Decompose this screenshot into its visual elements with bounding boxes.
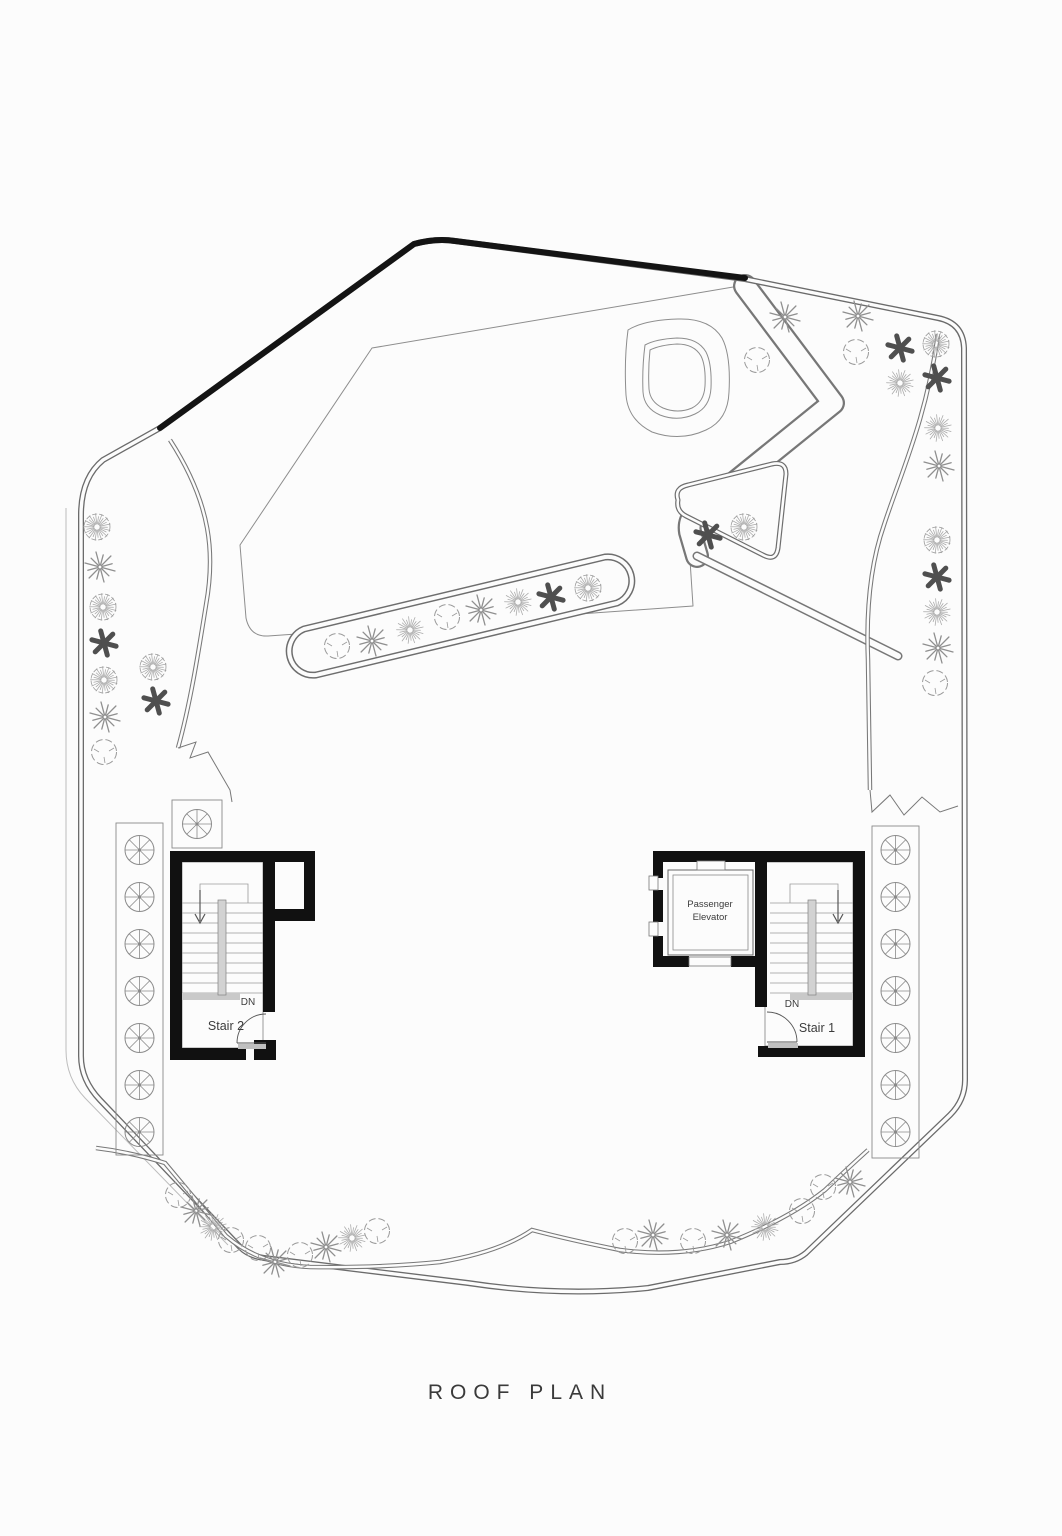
plant-aster-icon xyxy=(888,336,912,360)
exhaust-fan-icon xyxy=(881,977,910,1006)
stair2-dn-label: DN xyxy=(241,997,255,1008)
stair1-stringer xyxy=(808,900,816,995)
elevator-label-line2: Elevator xyxy=(693,912,728,923)
plant-scallop-icon xyxy=(923,671,948,696)
plant-aster-icon xyxy=(925,366,949,390)
plant-spiky-icon xyxy=(712,1220,742,1250)
stair2-stringer xyxy=(218,900,226,995)
plant-spiky-icon xyxy=(90,702,120,732)
plant-scallop-icon xyxy=(745,348,770,373)
plant-scallop-icon xyxy=(365,1219,390,1244)
plant-aster-icon xyxy=(92,631,116,655)
stair2-label: Stair 2 xyxy=(208,1019,244,1033)
exhaust-fan-icon xyxy=(125,1118,154,1147)
plant-texcircle-icon xyxy=(140,654,167,681)
plant-spiky-icon xyxy=(924,451,954,481)
plant-fluffy-icon xyxy=(887,370,914,397)
plant-texcircle-icon xyxy=(91,667,118,694)
stair2-core: DN Stair 2 xyxy=(170,851,315,1060)
plant-scallop-icon xyxy=(92,740,117,765)
planter-strip xyxy=(289,557,632,675)
exhaust-fan-icon xyxy=(125,977,154,1006)
stair1-landing xyxy=(790,993,853,1000)
stair2-door-sill xyxy=(238,1044,266,1049)
plant-scallop-icon xyxy=(844,340,869,365)
exhaust-fan-icon xyxy=(881,883,910,912)
left-bed-kerb-inner xyxy=(170,440,210,748)
stair2-landing xyxy=(182,993,240,1000)
stair1-door-sill xyxy=(768,1043,798,1048)
bottom-bed-kerb xyxy=(96,1148,868,1267)
plant-fluffy-icon xyxy=(924,599,951,626)
stair1-core: Passenger Elevator DN Stair 1 xyxy=(649,851,865,1057)
exhaust-fan-icon xyxy=(881,930,910,959)
left-wall-break xyxy=(178,742,232,802)
plant-texcircle-icon xyxy=(924,527,951,554)
right-bed-kerb-inner xyxy=(868,334,938,790)
right-bed-kerb xyxy=(868,334,938,790)
exhaust-fan-icon xyxy=(881,1024,910,1053)
plant-spiky-icon xyxy=(311,1232,341,1262)
exhaust-fan-icon xyxy=(881,1118,910,1147)
plant-spiky-icon xyxy=(835,1167,865,1197)
exhaust-fan-icon xyxy=(125,836,154,865)
elevator-label-line1: Passenger xyxy=(687,899,732,910)
right-wall-break xyxy=(870,790,958,815)
stair1-down-arrow-icon xyxy=(833,890,843,923)
plant-spiky-icon xyxy=(923,633,953,663)
stair1-label: Stair 1 xyxy=(799,1021,835,1035)
plant-fluffy-icon xyxy=(925,415,952,442)
exhaust-fan-icon xyxy=(881,1071,910,1100)
exhaust-fan-icon xyxy=(881,836,910,865)
stair1-dn-label: DN xyxy=(785,999,799,1010)
exhaust-fan-icon xyxy=(125,883,154,912)
plant-spiky-icon xyxy=(843,301,873,331)
exhaust-fan-icon xyxy=(125,1024,154,1053)
exhaust-fan-icon xyxy=(183,810,212,839)
roof-plan-sheet: DN Stair 2 xyxy=(0,0,1062,1536)
plant-fluffy-icon xyxy=(339,1225,366,1252)
plant-spiky-icon xyxy=(85,552,115,582)
sheet-title: ROOF PLAN xyxy=(428,1381,612,1404)
skylight-hexagon xyxy=(625,319,729,437)
stair2-down-arrow-icon xyxy=(195,890,205,923)
plant-aster-icon xyxy=(925,565,949,589)
roof-plan-drawing: DN Stair 2 xyxy=(0,0,1062,1536)
plants-layer xyxy=(84,301,955,1277)
stair1-door-swing-icon xyxy=(767,1012,797,1042)
bottom-bed-kerb-inner xyxy=(96,1148,868,1267)
plant-aster-icon xyxy=(144,689,168,713)
plant-texcircle-icon xyxy=(90,594,117,621)
plant-spiky-icon xyxy=(638,1220,668,1250)
exhaust-fan-icon xyxy=(125,1071,154,1100)
exhaust-fan-icon xyxy=(125,930,154,959)
plant-texcircle-icon xyxy=(84,514,111,541)
